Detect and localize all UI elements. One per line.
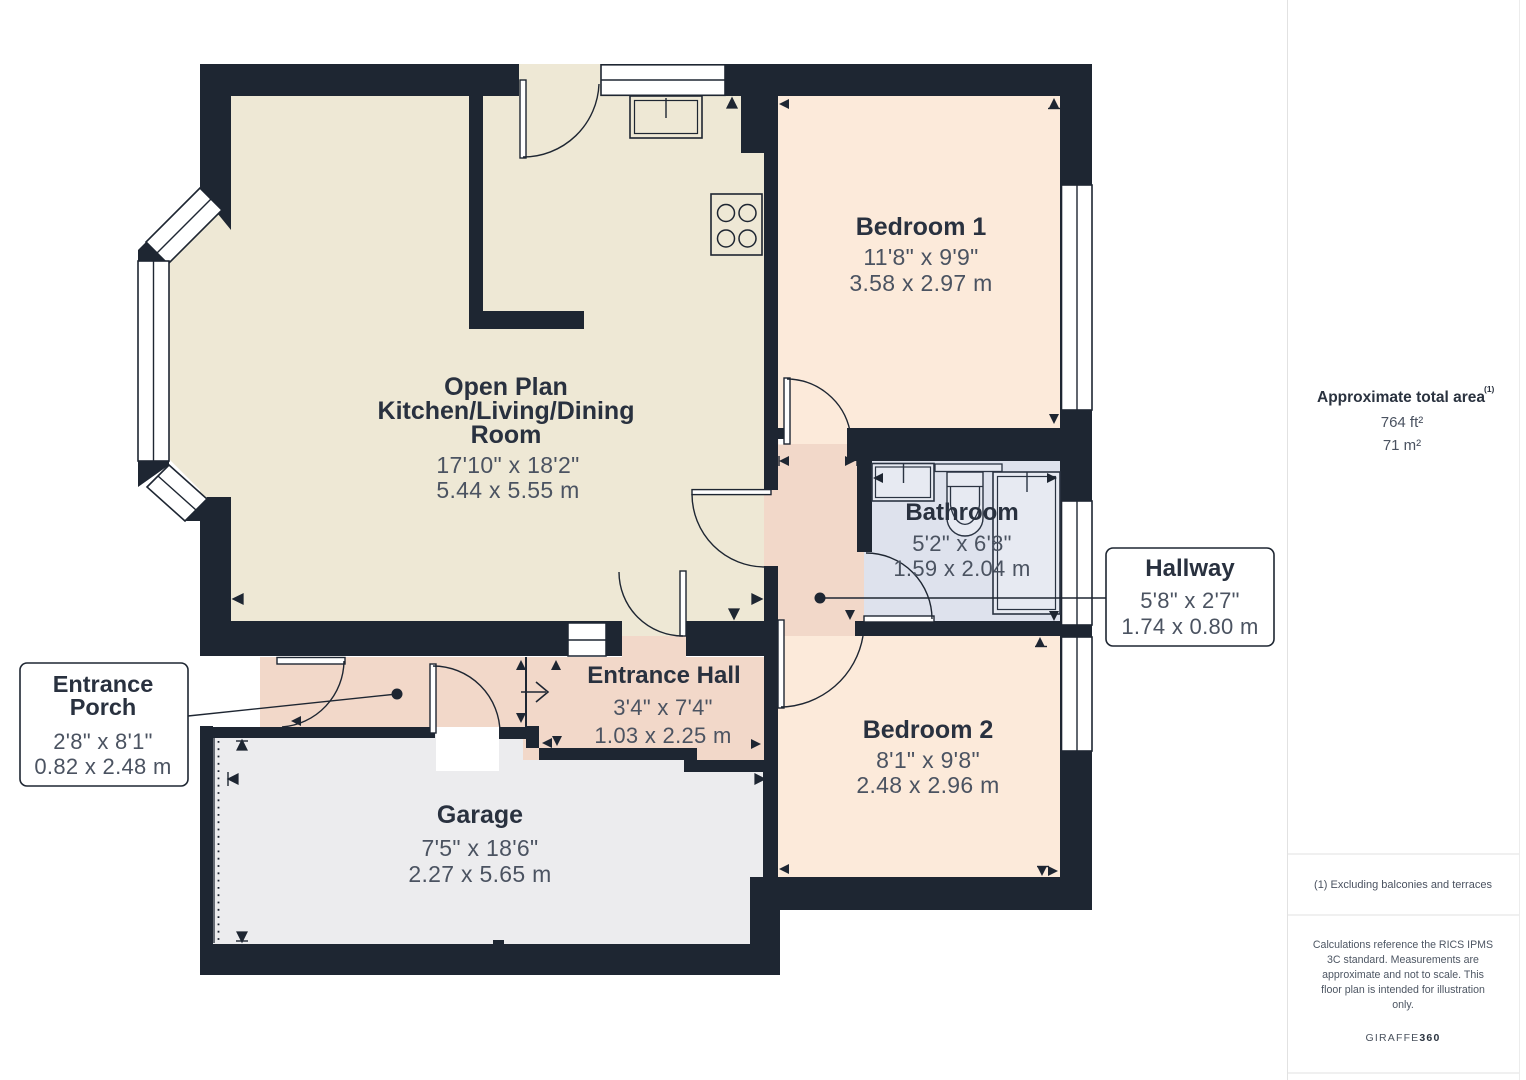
svg-text:17'10" x 18'2": 17'10" x 18'2" bbox=[436, 452, 579, 478]
svg-text:7'5" x 18'6": 7'5" x 18'6" bbox=[422, 835, 539, 861]
svg-text:5'8" x 2'7": 5'8" x 2'7" bbox=[1140, 588, 1240, 613]
svg-text:Entrance Hall: Entrance Hall bbox=[587, 662, 740, 689]
svg-text:Porch: Porch bbox=[70, 694, 137, 720]
svg-text:5.44 x 5.55 m: 5.44 x 5.55 m bbox=[436, 477, 579, 503]
svg-text:2.48 x 2.96 m: 2.48 x 2.96 m bbox=[856, 772, 999, 798]
svg-text:11'8" x 9'9": 11'8" x 9'9" bbox=[863, 244, 978, 270]
svg-text:Bedroom 1: Bedroom 1 bbox=[856, 213, 987, 241]
svg-text:2.27 x 5.65 m: 2.27 x 5.65 m bbox=[408, 861, 551, 887]
svg-text:Bathroom: Bathroom bbox=[905, 499, 1018, 526]
svg-text:764 ft²: 764 ft² bbox=[1381, 414, 1424, 431]
svg-text:Room: Room bbox=[471, 421, 542, 449]
svg-text:Approximate total area: Approximate total area bbox=[1317, 389, 1485, 406]
svg-text:1.03 x 2.25 m: 1.03 x 2.25 m bbox=[594, 723, 731, 748]
svg-text:only.: only. bbox=[1392, 999, 1414, 1011]
svg-text:approximate and not to scale.: approximate and not to scale. This bbox=[1322, 969, 1484, 981]
svg-text:(1) Excluding balconies and te: (1) Excluding balconies and terraces bbox=[1314, 879, 1492, 891]
svg-text:3C standard. Measurements are: 3C standard. Measurements are bbox=[1327, 954, 1479, 966]
svg-text:71 m²: 71 m² bbox=[1383, 437, 1421, 454]
svg-text:Calculations reference the RIC: Calculations reference the RICS IPMS bbox=[1313, 939, 1493, 951]
svg-text:(1): (1) bbox=[1484, 384, 1495, 394]
svg-text:1.59 x 2.04 m: 1.59 x 2.04 m bbox=[893, 556, 1030, 581]
svg-text:0.82 x 2.48 m: 0.82 x 2.48 m bbox=[34, 754, 171, 779]
svg-text:GIRAFFE360: GIRAFFE360 bbox=[1365, 1032, 1440, 1044]
svg-text:5'2" x 6'8": 5'2" x 6'8" bbox=[912, 531, 1012, 556]
svg-text:1.74 x 0.80 m: 1.74 x 0.80 m bbox=[1121, 614, 1258, 639]
svg-text:Hallway: Hallway bbox=[1145, 555, 1235, 582]
svg-text:3'4" x 7'4": 3'4" x 7'4" bbox=[613, 695, 713, 720]
svg-text:Bedroom 2: Bedroom 2 bbox=[863, 716, 994, 744]
svg-text:Garage: Garage bbox=[437, 801, 523, 829]
svg-text:3.58 x 2.97 m: 3.58 x 2.97 m bbox=[849, 270, 992, 296]
svg-text:8'1" x 9'8": 8'1" x 9'8" bbox=[876, 747, 980, 773]
svg-text:floor plan is intended for ill: floor plan is intended for illustration bbox=[1321, 984, 1485, 996]
svg-text:2'8" x 8'1": 2'8" x 8'1" bbox=[53, 729, 153, 754]
